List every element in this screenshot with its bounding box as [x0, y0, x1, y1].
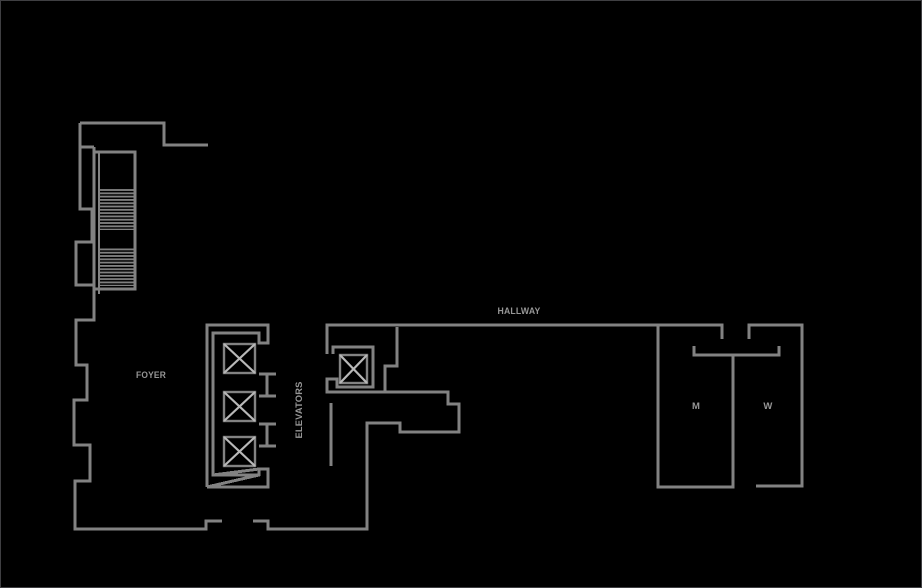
mens-restroom-label: M: [692, 401, 700, 412]
elevator-door-divider-1: [259, 374, 276, 396]
x-mark-car-1: [224, 344, 255, 373]
x-mark-car-2: [224, 392, 255, 421]
hallway-label: HALLWAY: [498, 306, 541, 316]
walls-layer: [74, 123, 802, 529]
left-exterior-wall: [74, 123, 222, 529]
elevators-label: ELEVATORS: [294, 382, 304, 439]
foyer-label: FOYER: [136, 370, 166, 380]
stair-treads-upper: [100, 189, 134, 230]
floor-plan-canvas: FOYER ELEVATORS HALLWAY M W: [0, 0, 922, 588]
elevator-door-divider-2: [259, 424, 276, 446]
hallway-jog-wall: [385, 327, 397, 392]
outer-wall-top: [80, 123, 208, 145]
stair-treads-lower: [100, 248, 134, 286]
womens-restroom-label: W: [763, 401, 772, 412]
x-mark-car-4: [340, 355, 367, 383]
lower-room-wall: [253, 347, 459, 529]
restroom-vestibule-wall: [694, 346, 779, 355]
restroom-right-wall: [749, 325, 802, 486]
x-mark-car-3: [224, 437, 255, 466]
floor-plan-drawing: FOYER ELEVATORS HALLWAY M W: [1, 1, 922, 588]
hallway-wall: [327, 325, 722, 354]
